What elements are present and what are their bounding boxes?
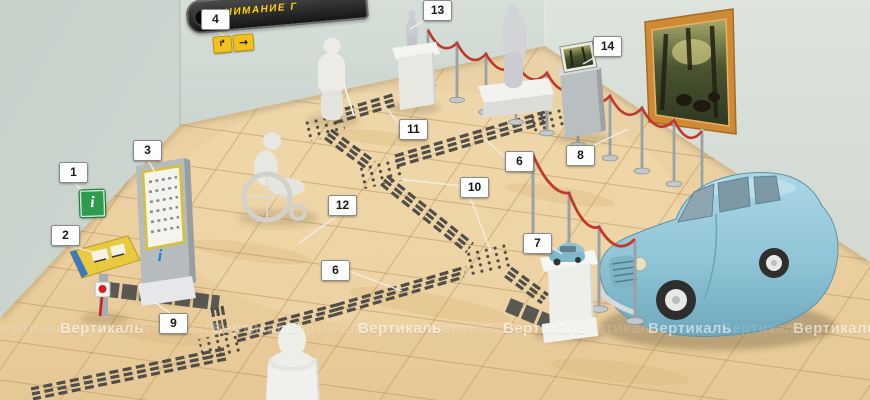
callout-7: 7 bbox=[523, 233, 552, 254]
callout-1: 1 bbox=[59, 162, 88, 183]
pillar-info-icon: i bbox=[150, 246, 170, 266]
car-front-wheel bbox=[656, 280, 696, 320]
callout-8: 8 bbox=[566, 145, 595, 166]
tactile-painting-copy bbox=[560, 41, 597, 72]
callout-3: 3 bbox=[133, 140, 162, 161]
callout-12: 12 bbox=[328, 195, 357, 216]
painting bbox=[645, 9, 736, 134]
callout-9: 9 bbox=[159, 313, 188, 334]
info-icon: i bbox=[90, 194, 95, 211]
scene-illustration bbox=[0, 0, 870, 400]
callout-11: 11 bbox=[399, 119, 428, 140]
callout-10: 10 bbox=[460, 177, 489, 198]
callout-4: 4 bbox=[201, 9, 230, 30]
arrow-right-icon: → bbox=[238, 36, 248, 50]
museum-accessibility-diagram: { "ticker": { "text": "ВНИМАНИЕ Г" }, "w… bbox=[0, 0, 870, 400]
callout-6b: 6 bbox=[321, 260, 350, 281]
callout-13: 13 bbox=[423, 0, 452, 21]
callout-6a: 6 bbox=[505, 151, 534, 172]
info-sign: i bbox=[79, 189, 107, 219]
callout-14: 14 bbox=[593, 36, 622, 57]
callout-2: 2 bbox=[51, 225, 80, 246]
route-sign: ↱ bbox=[212, 35, 232, 54]
route-pictogram-icon: ↱ bbox=[218, 39, 226, 50]
direction-arrow-sign: → bbox=[232, 33, 254, 52]
ticker-text: ВНИМАНИЕ Г bbox=[216, 0, 356, 19]
car-rear-wheel bbox=[759, 248, 789, 278]
